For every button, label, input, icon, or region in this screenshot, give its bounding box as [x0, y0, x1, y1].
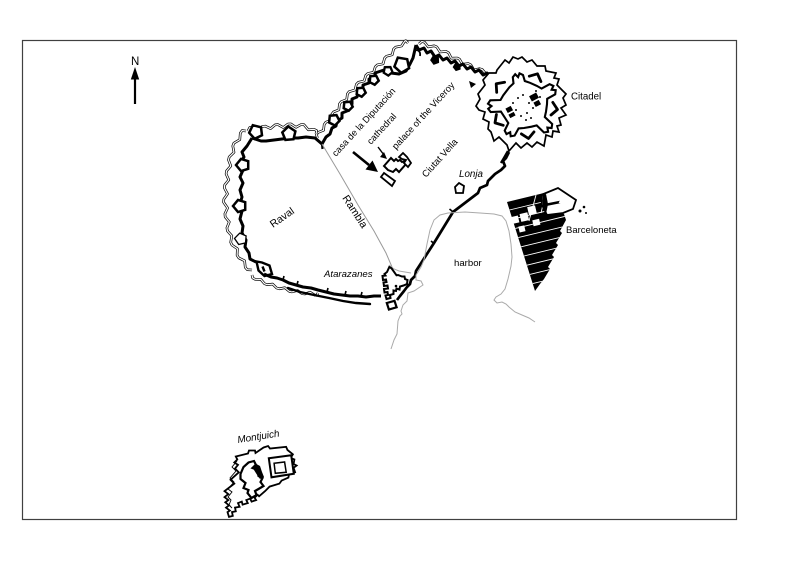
svg-text:harbor: harbor [454, 258, 483, 269]
svg-text:Citadel: Citadel [571, 92, 601, 103]
svg-text:Atarazanes: Atarazanes [323, 269, 373, 280]
svg-text:Lonja: Lonja [459, 169, 484, 180]
svg-text:Montjuich: Montjuich [237, 428, 281, 446]
svg-text:palace of the Viceroy: palace of the Viceroy [389, 79, 456, 151]
svg-text:N: N [131, 56, 139, 68]
svg-text:Raval: Raval [268, 205, 297, 230]
svg-text:Ciutat Vella: Ciutat Vella [420, 136, 461, 180]
svg-text:Barceloneta: Barceloneta [566, 225, 617, 236]
